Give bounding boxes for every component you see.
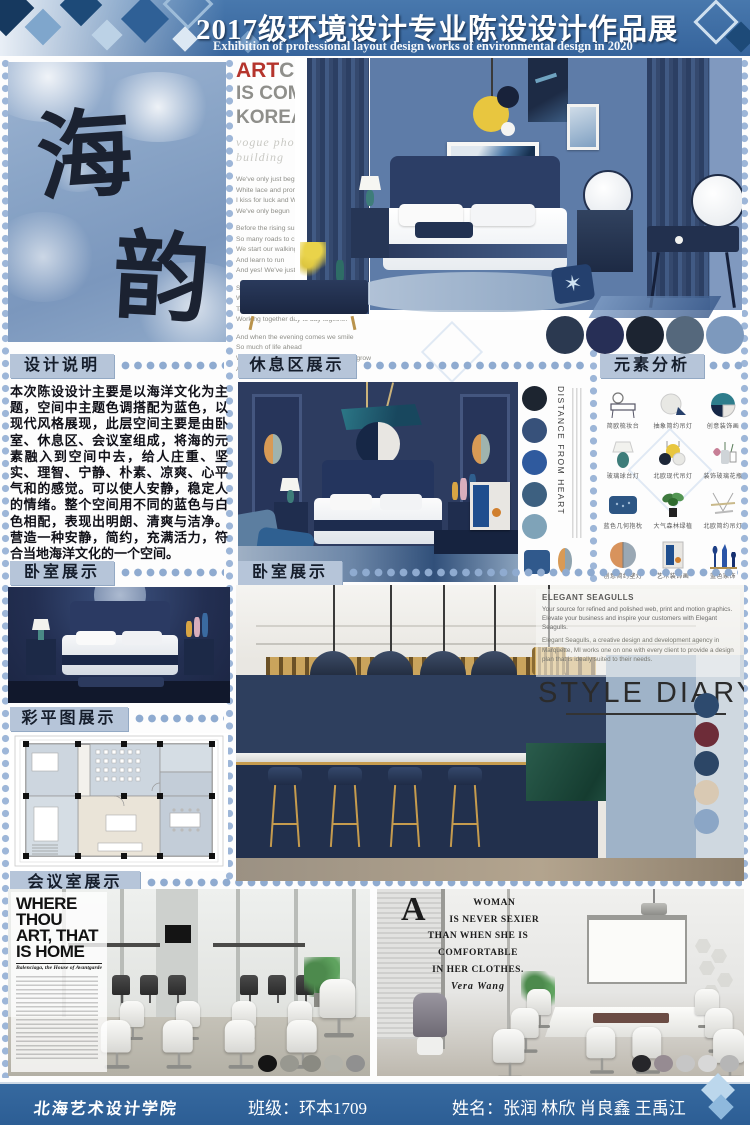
section-title-bedroom-left: 卧室展示 bbox=[10, 561, 114, 585]
dotted-row bbox=[120, 360, 224, 371]
palette-rest-area bbox=[522, 386, 547, 539]
bed-runner bbox=[62, 655, 178, 665]
wall-sconce-left bbox=[264, 434, 282, 464]
dotted-row bbox=[134, 713, 224, 724]
color-swatch bbox=[302, 1055, 321, 1072]
color-swatch bbox=[698, 1055, 717, 1072]
elegant-text-block: ELEGANT SEAGULLS Your source for refined… bbox=[536, 589, 740, 677]
where-thou-title: WHERE THOU ART, THAT IS HOME bbox=[16, 896, 102, 961]
where-thou-subtitle: Balenciaga, the House of Avantgarde bbox=[16, 963, 102, 971]
line-pendant-icon bbox=[707, 489, 739, 521]
header-banner: 2017级环境设计专业陈设设计作品展 Exhibition of profess… bbox=[0, 0, 750, 56]
floor-plan bbox=[10, 733, 228, 871]
bar-stool bbox=[328, 767, 362, 853]
tv-console bbox=[240, 280, 368, 332]
color-swatch bbox=[280, 1055, 299, 1072]
section-title-elements: 元素分析 bbox=[600, 354, 704, 378]
ceiling-projector bbox=[641, 903, 667, 915]
where-thou-panel: WHERE THOU ART, THAT IS HOME Balenciaga,… bbox=[11, 892, 107, 1072]
nightstand bbox=[184, 639, 214, 675]
pillow bbox=[76, 631, 116, 645]
vase-yellow bbox=[452, 482, 458, 500]
color-swatch bbox=[522, 482, 547, 507]
exec-chair bbox=[320, 979, 359, 1039]
color-swatch bbox=[694, 780, 719, 805]
art-word: ART bbox=[236, 59, 279, 82]
nightstand bbox=[26, 639, 56, 675]
conference-right-photo: A WOMAN IS NEVER SEXIER THAN WHEN SHE IS… bbox=[377, 889, 744, 1076]
vertical-caption: DISTANCE FROM HEART bbox=[556, 386, 566, 515]
bedroom-left-photo bbox=[8, 587, 230, 703]
dotted-row bbox=[708, 360, 742, 371]
round-art-icon bbox=[708, 389, 738, 421]
palette-conference-left bbox=[258, 1055, 365, 1072]
color-swatch bbox=[694, 722, 719, 747]
design-note-body: 本次陈设设计主要是以海洋文化为主题，空间中主题色调搭配为蓝色，以现代风格展现，此… bbox=[10, 384, 228, 558]
watermark-diamond bbox=[421, 321, 483, 383]
bar-stool bbox=[448, 767, 482, 853]
element-item: 北欧现代吊灯 bbox=[648, 432, 698, 482]
bar-stool bbox=[388, 767, 422, 853]
pillow-navy bbox=[415, 222, 473, 238]
color-swatch bbox=[626, 316, 664, 354]
bed-runner bbox=[314, 520, 442, 531]
elegant-heading: ELEGANT SEAGULLS bbox=[542, 593, 734, 602]
color-swatch bbox=[586, 316, 624, 354]
abstract-art bbox=[528, 58, 568, 122]
pillow-icon bbox=[607, 489, 639, 521]
lamp-shade bbox=[32, 619, 50, 630]
table-lamp-body bbox=[366, 190, 374, 206]
color-swatch bbox=[694, 809, 719, 834]
vase bbox=[336, 260, 344, 282]
section-title-rest-area: 休息区展示 bbox=[238, 354, 356, 378]
conference-left-photo: WHERE THOU ART, THAT IS HOME Balenciaga,… bbox=[8, 889, 370, 1076]
table-runner bbox=[593, 1013, 669, 1023]
fine-print-lines bbox=[16, 976, 98, 1062]
art-panel bbox=[470, 482, 510, 530]
vase-pink bbox=[194, 617, 200, 637]
element-item: 简欧梳妆台 bbox=[598, 382, 648, 432]
element-item: 大气森林绿植 bbox=[648, 482, 698, 532]
footer-class: 班级：环本1709 bbox=[248, 1094, 367, 1119]
element-item: 玻璃球台灯 bbox=[598, 432, 648, 482]
rest-side-strip: DISTANCE FROM HEART bbox=[520, 382, 586, 582]
color-swatch bbox=[666, 316, 704, 354]
section-title-design-note: 设计说明 bbox=[10, 354, 114, 378]
palette-style-diary bbox=[694, 693, 719, 834]
sea-calligraphy-panel: 海 韵 bbox=[8, 62, 226, 342]
style-diary-photo: ELEGANT SEAGULLS Your source for refined… bbox=[236, 585, 744, 881]
color-swatch bbox=[632, 1055, 651, 1072]
palette-conference-right bbox=[632, 1055, 739, 1072]
projector-screen bbox=[587, 915, 687, 984]
element-item: 装饰玻璃花瓶 bbox=[698, 432, 748, 482]
color-swatch bbox=[694, 751, 719, 776]
gray-chair-seat bbox=[417, 1037, 443, 1055]
dotted-row bbox=[348, 567, 738, 578]
gray-chair-back bbox=[413, 993, 447, 1037]
vertical-fine-print bbox=[572, 388, 582, 538]
office-chair-white bbox=[493, 1029, 527, 1076]
lamp-body bbox=[287, 490, 294, 503]
color-swatch bbox=[522, 514, 547, 539]
quote-initial: A bbox=[401, 895, 426, 926]
color-swatch bbox=[522, 418, 547, 443]
color-swatch bbox=[720, 1055, 739, 1072]
plant-icon bbox=[658, 489, 688, 521]
bed-bench bbox=[78, 677, 164, 687]
exhibition-poster: 2017级环境设计专业陈设设计作品展 Exhibition of profess… bbox=[0, 0, 750, 1125]
wall-sconce-right bbox=[472, 434, 490, 464]
dotted-row bbox=[120, 567, 224, 578]
chest bbox=[577, 210, 633, 272]
vanity-desk bbox=[647, 226, 739, 252]
pillow bbox=[330, 494, 372, 510]
wall-tv bbox=[165, 925, 191, 943]
color-swatch bbox=[522, 450, 547, 475]
section-title-bedroom-main: 卧室展示 bbox=[238, 561, 342, 585]
color-swatch bbox=[694, 693, 719, 718]
color-swatch bbox=[706, 316, 744, 354]
rest-area-photo bbox=[238, 382, 518, 582]
calligraphy-yun: 韵 bbox=[110, 198, 213, 342]
footer-school: 北海艺术设计学院 bbox=[33, 1095, 180, 1119]
pillow bbox=[380, 494, 422, 510]
tv-console bbox=[434, 530, 518, 554]
nightstand-left bbox=[351, 208, 389, 258]
wall-art-small bbox=[567, 104, 599, 150]
element-item: 北欧简约吊灯 bbox=[698, 482, 748, 532]
vases-icon bbox=[707, 439, 739, 471]
footer-names: 姓名：张润 林欣 肖良鑫 王禹江 bbox=[452, 1094, 686, 1119]
starfish-pillow: ✶ bbox=[551, 263, 596, 304]
pillow bbox=[122, 631, 162, 645]
color-swatch bbox=[522, 386, 547, 411]
color-swatch bbox=[654, 1055, 673, 1072]
elegant-para2: Elegant Seagulls, a creative design and … bbox=[542, 636, 734, 663]
color-swatch bbox=[346, 1055, 365, 1072]
palette-bedroom-top bbox=[546, 316, 744, 354]
pendant-navy bbox=[497, 86, 519, 108]
element-item: 蓝色几何抱枕 bbox=[598, 482, 648, 532]
linear-light bbox=[213, 943, 305, 947]
quote-author: Vera Wang bbox=[393, 981, 563, 992]
poster-subtitle: Exhibition of professional layout design… bbox=[213, 39, 633, 54]
floor-plan-drawing bbox=[10, 733, 228, 871]
lamp-body bbox=[38, 630, 44, 640]
table-lamp-icon bbox=[608, 439, 638, 471]
bed-runner bbox=[383, 244, 567, 258]
vanity-icon bbox=[608, 389, 638, 421]
vase-yellow bbox=[186, 621, 192, 637]
footer-bar: 北海艺术设计学院 班级：环本1709 姓名：张润 林欣 肖良鑫 王禹江 bbox=[0, 1082, 750, 1125]
rug-right bbox=[589, 296, 722, 318]
office-chair bbox=[268, 975, 288, 1005]
office-chair-white bbox=[163, 1020, 196, 1070]
section-title-color-plan: 彩平图展示 bbox=[10, 707, 128, 731]
modern-pendant-icon bbox=[657, 439, 689, 471]
vanity-mirror bbox=[691, 174, 742, 228]
vase-pink bbox=[460, 478, 467, 500]
color-swatch bbox=[676, 1055, 695, 1072]
elegant-para1: Your source for refined and polished web… bbox=[542, 605, 734, 632]
quote-block: A WOMAN IS NEVER SEXIER THAN WHEN SHE IS… bbox=[393, 895, 563, 992]
element-item: 抽象简约吊灯 bbox=[648, 382, 698, 432]
pillow bbox=[471, 204, 535, 226]
element-item: 创意装饰画 bbox=[698, 382, 748, 432]
element-grid: 简欧梳妆台 抽象简约吊灯 创意装饰画 玻璃球台灯 北欧现代吊灯 装饰玻璃花瓶 蓝… bbox=[598, 382, 748, 582]
dotted-row bbox=[362, 360, 584, 371]
color-swatch bbox=[546, 316, 584, 354]
floor bbox=[236, 858, 744, 881]
bar-stool bbox=[268, 767, 302, 853]
color-swatch bbox=[258, 1055, 277, 1072]
color-swatch bbox=[324, 1055, 343, 1072]
yellow-flowers bbox=[300, 242, 326, 282]
office-chair-white bbox=[586, 1027, 617, 1075]
vase-blue bbox=[202, 613, 208, 637]
starfish-icon: ✶ bbox=[562, 270, 584, 297]
table-lamp-shade bbox=[359, 176, 381, 190]
ball-lamp-icon bbox=[658, 389, 688, 421]
pendant-white bbox=[501, 122, 515, 136]
office-chair-white bbox=[225, 1020, 258, 1070]
